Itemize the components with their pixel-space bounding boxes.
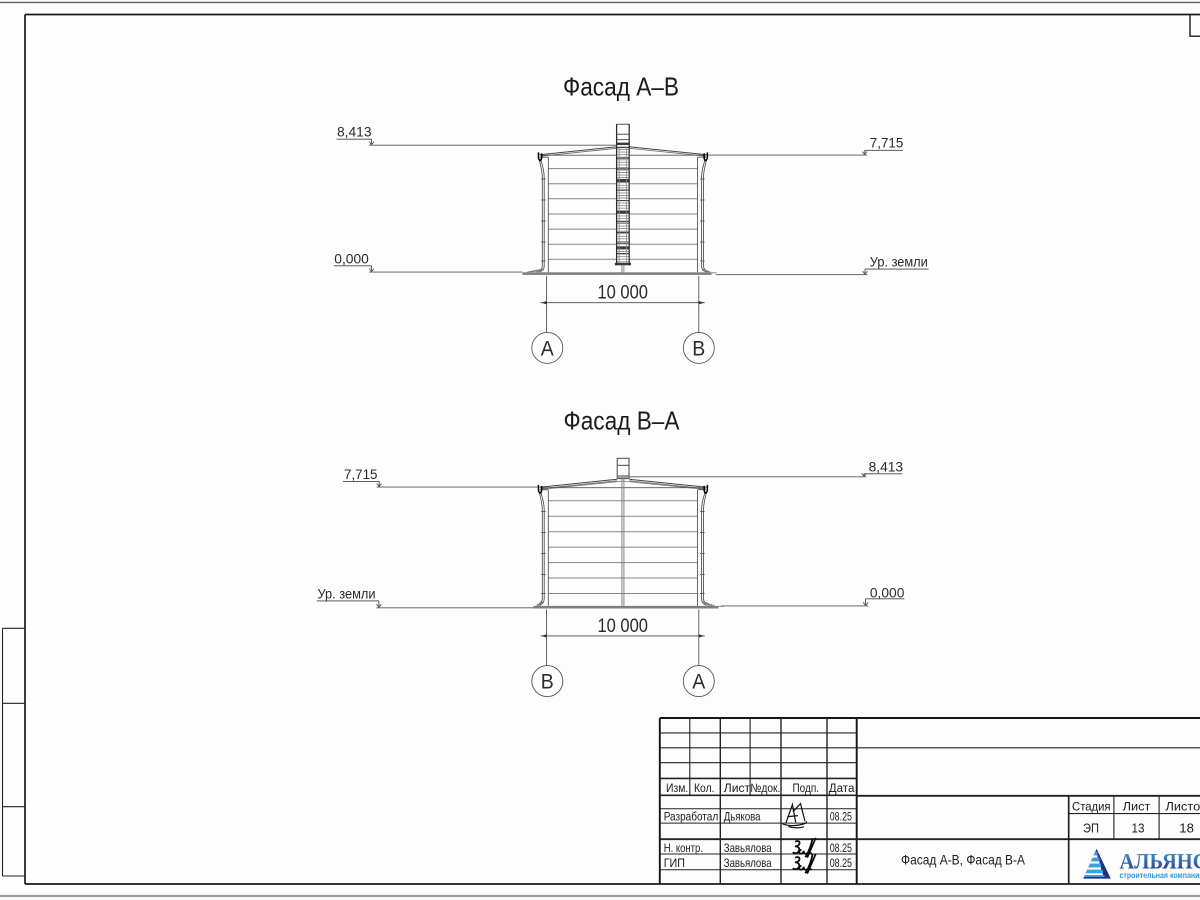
svg-text:8,413: 8,413 [337,123,372,139]
svg-text:Фасад А–В: Фасад А–В [563,72,679,102]
svg-text:13: 13 [1132,822,1145,836]
svg-text:Лист: Лист [1123,799,1151,813]
svg-text:Стадия: Стадия [1072,799,1111,813]
svg-text:Лист: Лист [724,781,751,795]
svg-text:строительная компания: строительная компания [1120,870,1200,880]
svg-text:10 000: 10 000 [597,282,648,304]
svg-text:ЭП: ЭП [1083,822,1099,836]
svg-text:Дьякова: Дьякова [724,809,761,823]
svg-text:8,413: 8,413 [869,458,904,474]
svg-text:7,715: 7,715 [344,466,378,482]
svg-text:А: А [541,337,554,360]
svg-text:Завьялова: Завьялова [724,841,772,855]
svg-text:Подп.: Подп. [793,781,820,795]
svg-text:А: А [692,671,705,694]
svg-text:18: 18 [1179,822,1194,836]
svg-text:Завьялова: Завьялова [724,856,772,870]
svg-text:№док.: №док. [750,781,780,795]
svg-text:10 000: 10 000 [597,615,648,637]
svg-text:7,715: 7,715 [870,135,904,151]
svg-text:0,000: 0,000 [870,585,905,601]
svg-text:Кол.: Кол. [694,781,715,795]
svg-text:Фасад А-В, Фасад В-А: Фасад А-В, Фасад В-А [901,852,1026,867]
svg-text:Дата: Дата [829,781,855,795]
svg-text:Ур. земли: Ур. земли [870,253,928,269]
svg-text:Листов: Листов [1166,799,1200,813]
svg-text:Разработал: Разработал [664,809,719,823]
svg-text:0,000: 0,000 [334,250,369,266]
svg-text:08.25: 08.25 [830,841,853,855]
svg-text:Фасад В–А: Фасад В–А [564,406,681,436]
svg-text:08.25: 08.25 [830,810,853,824]
svg-text:Ур. земли: Ур. земли [318,585,376,601]
svg-text:ГИП: ГИП [664,856,685,870]
svg-text:08.25: 08.25 [830,856,853,870]
svg-text:В: В [541,671,554,694]
svg-text:Изм.: Изм. [666,781,688,795]
svg-text:Н. контр.: Н. контр. [664,841,703,855]
svg-text:В: В [692,337,705,360]
